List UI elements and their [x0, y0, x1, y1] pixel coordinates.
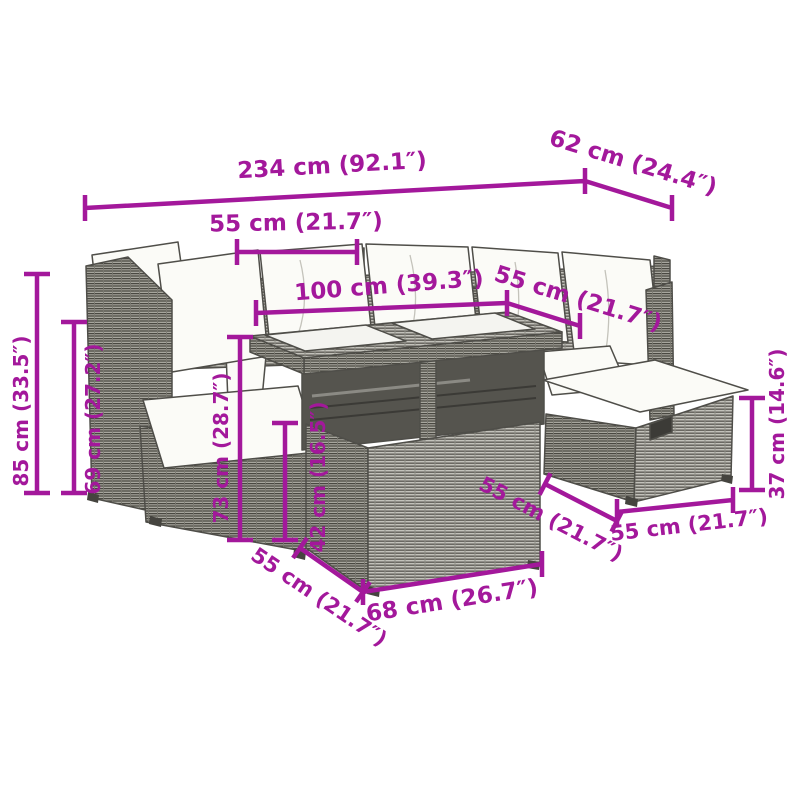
dim-label-backrest-height: 69 cm (27.2″) — [81, 343, 105, 494]
back-pillow — [158, 250, 268, 372]
dim-label-table-height: 73 cm (28.7″) — [209, 372, 233, 523]
dim-label-back-height: 85 cm (33.5″) — [9, 335, 33, 486]
furniture-diagram-canvas — [0, 0, 800, 800]
diagram-stage: 234 cm (92.1″) 62 cm (24.4″) 55 cm (21.7… — [0, 0, 800, 800]
dim-label-shelf-height: 42 cm (16.5″) — [306, 401, 330, 552]
table-divider — [420, 360, 436, 446]
dim-label-left-section-width: 55 cm (21.7″) — [209, 208, 383, 237]
dim-label-stool-height: 37 cm (14.6″) — [765, 348, 789, 499]
stool-illustration — [543, 360, 748, 502]
